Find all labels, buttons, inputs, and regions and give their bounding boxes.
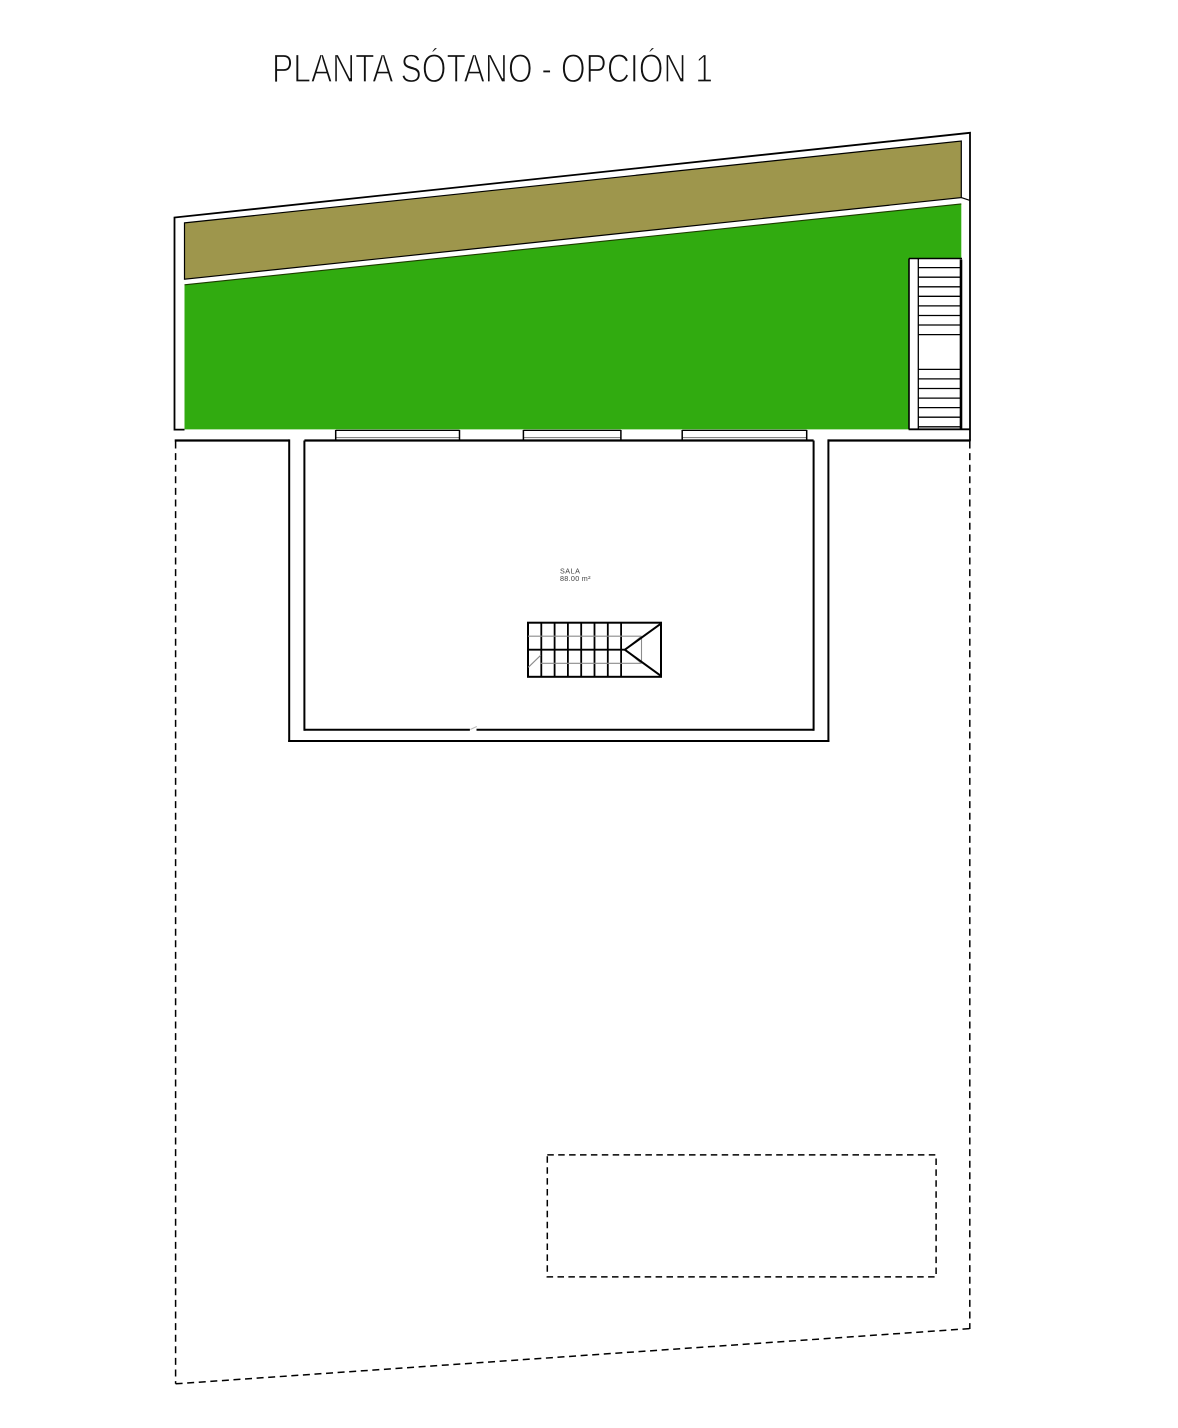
- svg-text:88.00 m²: 88.00 m²: [560, 574, 591, 583]
- svg-text:PLANTA SÓTANO - OPCIÓN 1: PLANTA SÓTANO - OPCIÓN 1: [272, 47, 713, 91]
